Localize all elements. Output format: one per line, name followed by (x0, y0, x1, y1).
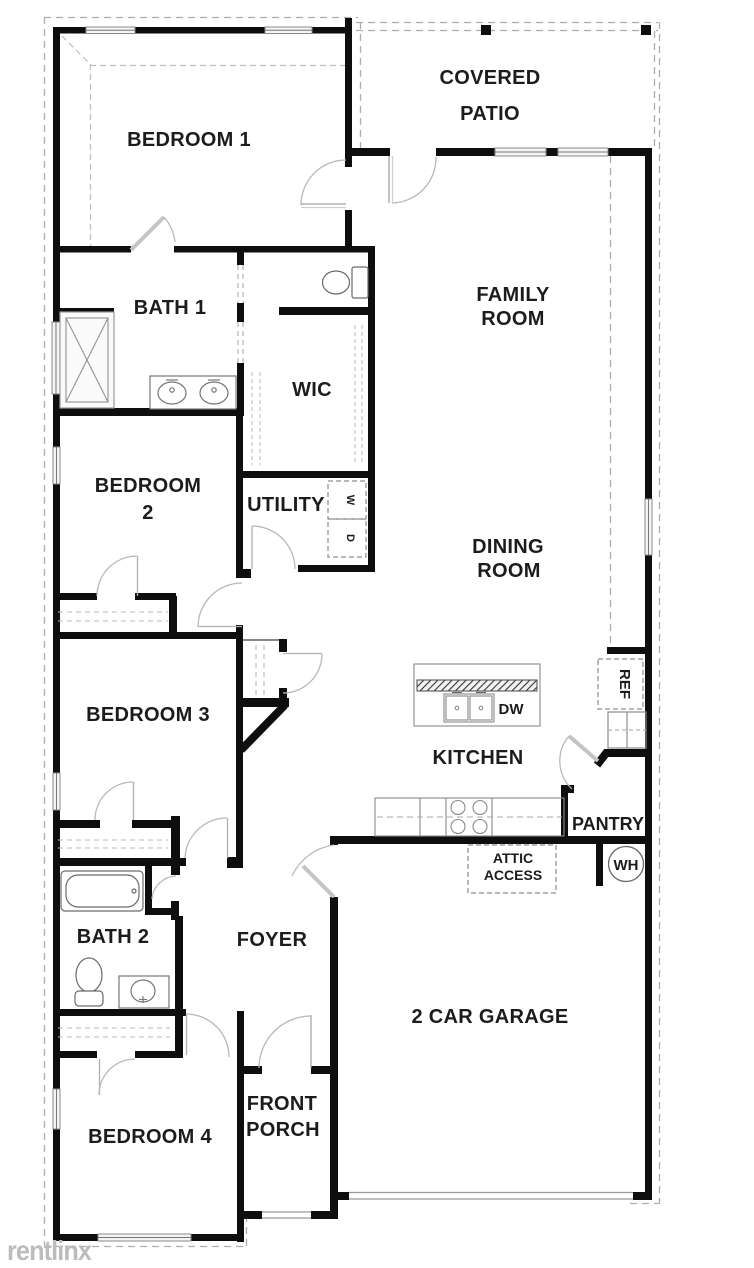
svg-text:D: D (344, 534, 356, 542)
svg-text:PORCH: PORCH (246, 1119, 320, 1141)
svg-text:PANTRY: PANTRY (572, 814, 644, 834)
svg-text:2: 2 (142, 502, 153, 524)
svg-text:FAMILY: FAMILY (476, 284, 550, 306)
svg-text:PATIO: PATIO (460, 103, 520, 125)
svg-text:KITCHEN: KITCHEN (433, 747, 524, 769)
svg-text:DINING: DINING (472, 536, 544, 558)
svg-text:COVERED: COVERED (439, 67, 540, 89)
svg-text:WH: WH (614, 857, 639, 874)
svg-text:ATTIC: ATTIC (493, 850, 533, 866)
svg-text:FRONT: FRONT (247, 1093, 317, 1115)
svg-text:BATH 1: BATH 1 (134, 297, 207, 319)
svg-text:ACCESS: ACCESS (484, 867, 542, 883)
svg-text:BEDROOM 4: BEDROOM 4 (88, 1126, 212, 1148)
svg-text:BEDROOM 1: BEDROOM 1 (127, 129, 251, 151)
svg-text:2 CAR GARAGE: 2 CAR GARAGE (412, 1006, 569, 1028)
svg-text:BEDROOM 3: BEDROOM 3 (86, 704, 210, 726)
svg-text:UTILITY: UTILITY (247, 494, 325, 516)
svg-text:REF: REF (616, 669, 633, 699)
svg-text:ROOM: ROOM (481, 308, 544, 330)
svg-text:BATH 2: BATH 2 (77, 926, 150, 948)
svg-text:ROOM: ROOM (477, 560, 540, 582)
svg-text:FOYER: FOYER (237, 929, 308, 951)
svg-text:W: W (344, 495, 356, 506)
svg-text:WIC: WIC (292, 379, 332, 401)
svg-text:BEDROOM: BEDROOM (95, 475, 202, 497)
svg-text:rentlinx: rentlinx (7, 1235, 92, 1266)
svg-text:DW: DW (499, 701, 525, 718)
